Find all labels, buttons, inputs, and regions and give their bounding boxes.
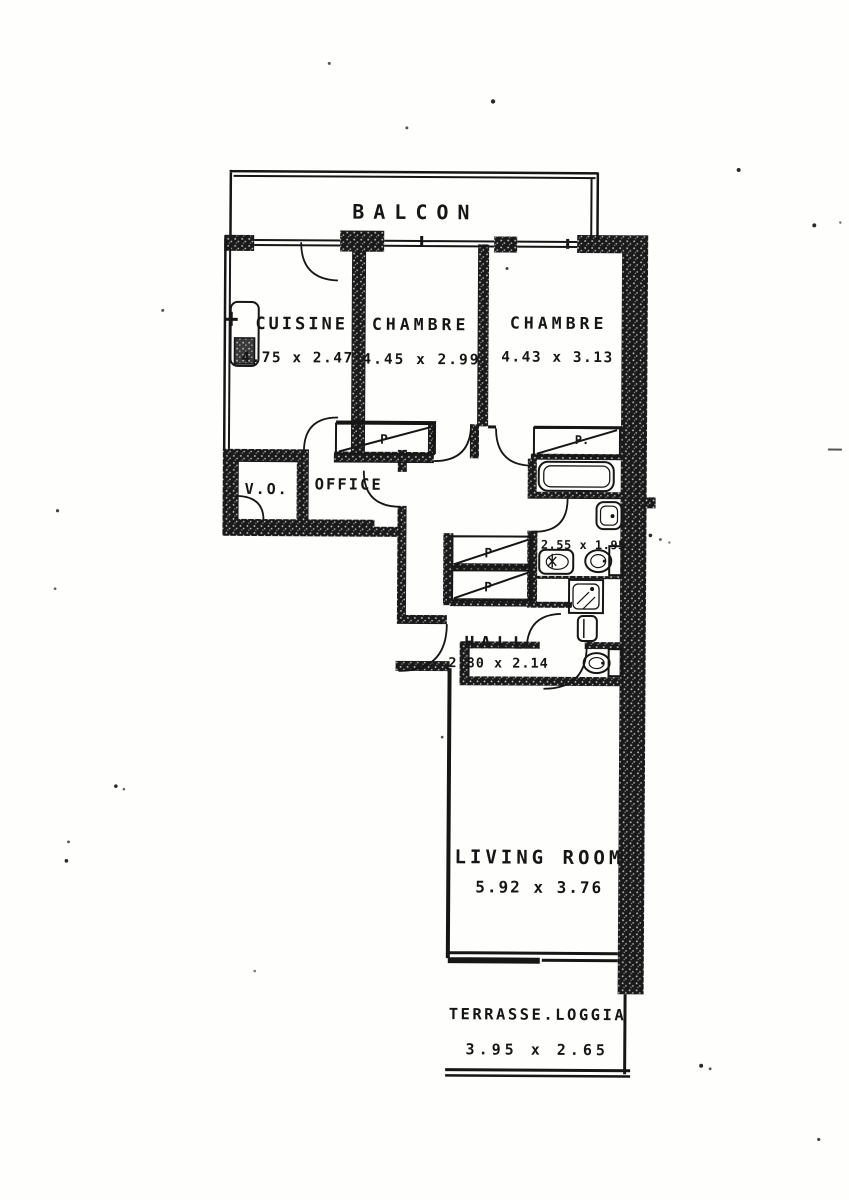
sink-icon [539, 550, 573, 574]
label-vo: V.O. [245, 480, 289, 498]
label-cuisine: CUISINE [255, 314, 348, 335]
dims-chambre-right: 4.43 x 3.13 [501, 349, 614, 366]
label-hall: HALL [464, 633, 529, 653]
label-chambre-left: CHAMBRE [372, 315, 470, 335]
washbasin-icon [596, 502, 621, 529]
dims-terrasse: 3.95 x 2.65 [466, 1040, 609, 1059]
label-chambre-right: CHAMBRE [510, 314, 608, 334]
label-living-room: LIVING ROOM [454, 846, 624, 869]
dims-hall: 2.80 x 2.14 [448, 655, 549, 672]
dims-cuisine: 4.75 x 2.47 [241, 350, 354, 367]
closet-p-hall-bottom: P [484, 580, 492, 595]
shower-icon [569, 580, 603, 613]
floor-plan-drawing: BALCON CUISINE 4.75 x 2.47 CHAMBRE 4.45 … [0, 0, 849, 1200]
toilet-icon [584, 649, 622, 676]
bathtub-icon [539, 462, 614, 491]
dims-chambre-left: 4.45 x 2.99 [362, 352, 480, 369]
scanned-floor-plan: BALCON CUISINE 4.75 x 2.47 CHAMBRE 4.45 … [0, 0, 849, 1200]
closet-p-corridor-right: P. [575, 433, 590, 447]
dims-bathroom: 2.55 x 1.95 [541, 538, 626, 553]
closet-p-hall-top: P [484, 546, 492, 561]
closet-p-corridor-left: P [380, 433, 388, 448]
label-terrasse: TERRASSE.LOGGIA [449, 1005, 627, 1024]
dims-living-room: 5.92 x 3.76 [475, 877, 603, 897]
radiator-icon [578, 616, 597, 641]
label-balcon: BALCON [352, 200, 478, 225]
label-office: OFFICE [315, 475, 383, 493]
